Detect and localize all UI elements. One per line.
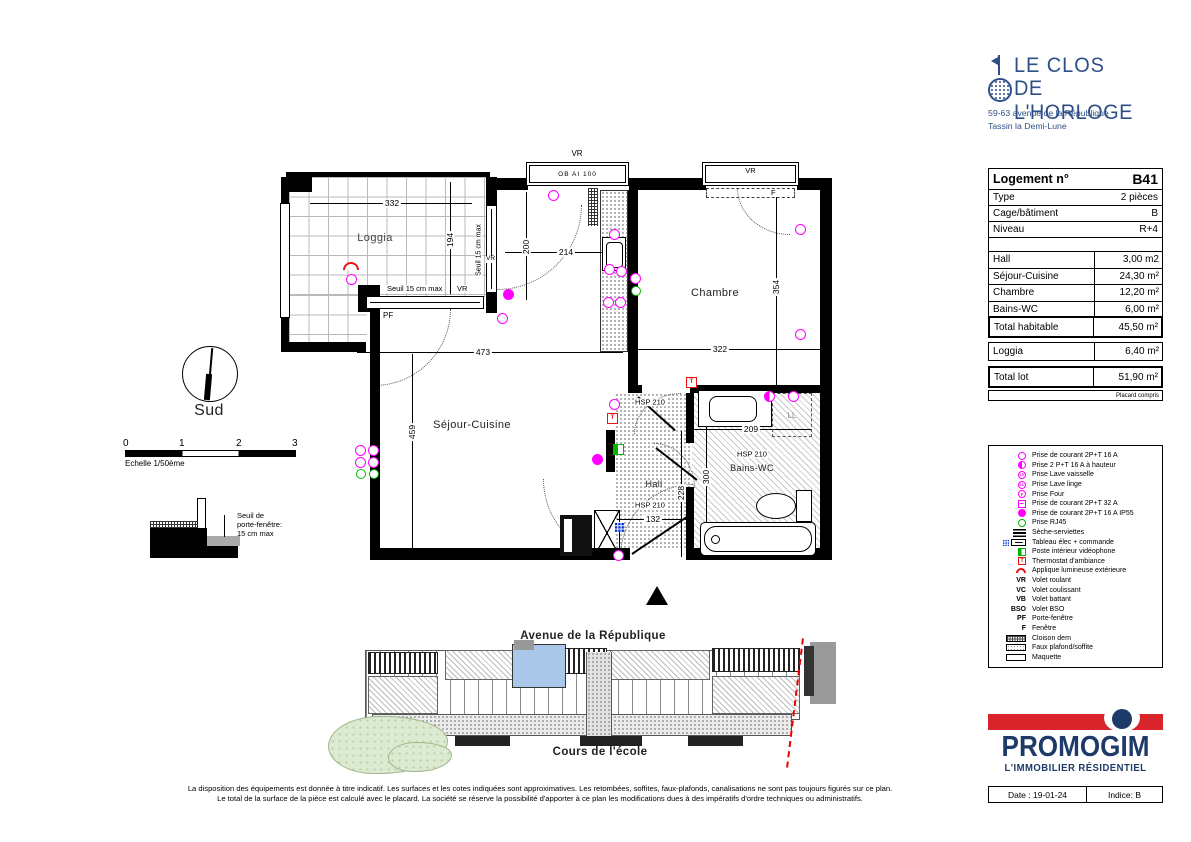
videophone-icon bbox=[1018, 548, 1026, 556]
legend-label: Sèche-serviettes bbox=[1032, 529, 1084, 536]
info-row-niveau: Niveau R+4 bbox=[989, 221, 1162, 237]
abbr-pf: PF bbox=[992, 615, 1032, 622]
hsp-label: HSP 210 bbox=[634, 398, 666, 406]
room-label-sejour: Séjour-Cuisine bbox=[433, 419, 511, 431]
legend-item: VRVolet roulant bbox=[992, 576, 1159, 586]
legend-item: VBVolet battant bbox=[992, 595, 1159, 605]
socket-icon bbox=[630, 273, 641, 284]
thermostat-icon: T bbox=[1018, 557, 1026, 565]
floor-plan-sheet: LE CLOS DE L'HORLOGE 59-63 avenue de la … bbox=[0, 0, 1191, 842]
legend-item: LLPrise Lave linge bbox=[992, 480, 1159, 490]
legend-label: Thermostat d'ambiance bbox=[1032, 558, 1105, 565]
legend-label: Prise 2 P+T 16 A à hauteur bbox=[1032, 462, 1116, 469]
footer-line2: Le total de la surface de la pièce est c… bbox=[105, 794, 975, 804]
legend-item: Maquette bbox=[992, 652, 1159, 662]
window-frame bbox=[491, 209, 492, 289]
compass-label: Sud bbox=[194, 402, 224, 420]
loggia-value: 6,40 m² bbox=[1094, 343, 1162, 360]
wall bbox=[486, 177, 497, 205]
legend-item: VCVolet coulissant bbox=[992, 585, 1159, 595]
socket-icon bbox=[346, 274, 357, 285]
socket-icon bbox=[615, 297, 626, 308]
pf-label: PF bbox=[382, 312, 394, 320]
dimension-label: 332 bbox=[383, 199, 401, 208]
abbr-vr: VR bbox=[992, 577, 1032, 584]
wall bbox=[281, 177, 289, 203]
area-row-bains: Bains-WC 6,00 m² bbox=[989, 301, 1162, 318]
legend-label: Volet battant bbox=[1032, 596, 1071, 603]
vr-label: VR bbox=[456, 285, 468, 293]
legend-label: Prise de courant 2P+T 32 A bbox=[1032, 500, 1118, 507]
socket-icon bbox=[368, 445, 379, 456]
street-label-bottom: Cours de l'école bbox=[553, 746, 648, 758]
seuil-label: Seuil 15 cm max bbox=[386, 285, 443, 293]
threshold-step-gray bbox=[207, 536, 240, 546]
total-hab-value: 45,50 m² bbox=[1093, 318, 1161, 336]
washbasin-counter bbox=[698, 390, 772, 427]
adjacent-plot-dark bbox=[804, 646, 814, 696]
wall bbox=[686, 393, 694, 443]
legend-item: Prise 2 P+T 16 A à hauteur bbox=[992, 461, 1159, 471]
socket-oven-icon: F bbox=[1018, 490, 1026, 498]
vr-label: VR bbox=[485, 256, 496, 263]
legend-item: Prise RJ45 bbox=[992, 518, 1159, 528]
info-label: Niveau bbox=[993, 224, 1024, 235]
legend-label: Faux plafond/soffite bbox=[1032, 644, 1093, 651]
vegetation bbox=[388, 742, 452, 772]
socket-dishwasher-icon: LV bbox=[1018, 471, 1026, 479]
legend-item: Faux plafond/soffite bbox=[992, 643, 1159, 653]
bathtub bbox=[700, 522, 816, 556]
socket-icon bbox=[788, 391, 799, 402]
legend-item: Prise de courant 2P+T 16 A IP55 bbox=[992, 509, 1159, 519]
room-area: 24,30 m² bbox=[1094, 269, 1162, 285]
kitchen-unit-slot bbox=[564, 519, 572, 552]
wall bbox=[486, 293, 497, 313]
dimension-label: 300 bbox=[702, 468, 711, 486]
scale-bar: 0 1 2 3 Echelle 1/50ème bbox=[125, 438, 300, 468]
socket-32a-icon bbox=[1018, 500, 1026, 508]
indice-cell: Indice: B bbox=[1087, 787, 1162, 802]
scale-tick-1: 1 bbox=[179, 438, 185, 449]
panel-command-icon bbox=[1011, 539, 1026, 546]
legend-label: Porte-fenêtre bbox=[1032, 615, 1073, 622]
dimension-label: 200 bbox=[522, 238, 531, 256]
brand-logo: LE CLOS DE L'HORLOGE 59-63 avenue de la … bbox=[988, 52, 1168, 132]
wall bbox=[370, 300, 380, 560]
bathtub-drain bbox=[711, 535, 720, 544]
loggia-label: Loggia bbox=[989, 343, 1094, 360]
legend-label: Poste intérieur vidéophone bbox=[1032, 548, 1115, 555]
street-label-top: Avenue de la République bbox=[520, 630, 666, 642]
threshold-text-1: Seuil de bbox=[236, 512, 265, 520]
thermostat-icon: T bbox=[686, 377, 697, 388]
socket-icon bbox=[609, 229, 620, 240]
abbr-f: F bbox=[992, 625, 1032, 632]
room-area: 12,20 m² bbox=[1094, 285, 1162, 301]
legend-item: Prise de courant 2P+T 16 A bbox=[992, 451, 1159, 461]
door-swing-arc bbox=[374, 309, 451, 386]
abbr-bso: BSO bbox=[992, 606, 1032, 613]
model-icon bbox=[1006, 654, 1026, 661]
promogim-logo: PROMOGIM L'IMMOBILIER RÉSIDENTIEL bbox=[988, 700, 1163, 780]
rj45-icon bbox=[356, 469, 366, 479]
wall bbox=[281, 342, 366, 352]
dimension-label: 214 bbox=[557, 248, 575, 257]
seuil-label-vertical: Seuil 15 cm max bbox=[476, 223, 483, 277]
dimension-label: 228 bbox=[677, 484, 686, 502]
room-area: 6,00 m² bbox=[1094, 302, 1162, 318]
wall bbox=[286, 172, 490, 177]
f-label: F bbox=[770, 189, 777, 197]
brand-name-line1: LE CLOS bbox=[1014, 54, 1105, 78]
slab-hatch bbox=[150, 521, 198, 528]
vr-label: VR bbox=[570, 150, 583, 158]
socket-16a-icon bbox=[1018, 452, 1026, 460]
room-label-hall: Hall bbox=[645, 479, 662, 489]
unit-title-row: Logement n° B41 bbox=[989, 169, 1162, 189]
footer-disclaimer: La disposition des équipements est donné… bbox=[105, 784, 975, 804]
room-name: Chambre bbox=[989, 285, 1094, 301]
legend-item: FFenêtre bbox=[992, 624, 1159, 634]
window-f-swing bbox=[706, 188, 795, 198]
room-name: Séjour-Cuisine bbox=[989, 269, 1094, 285]
promogim-tagline: L'IMMOBILIER RÉSIDENTIEL bbox=[992, 763, 1158, 774]
legend-label: Fenêtre bbox=[1032, 625, 1056, 632]
legend-item: FPrise Four bbox=[992, 489, 1159, 499]
socket-height-icon bbox=[1018, 461, 1026, 469]
wall bbox=[286, 172, 312, 192]
total-lot-label: Total lot bbox=[990, 368, 1093, 386]
dimension-label: 473 bbox=[474, 348, 492, 357]
legend: Prise de courant 2P+T 16 A Prise 2 P+T 1… bbox=[988, 445, 1163, 668]
socket-icon bbox=[497, 313, 508, 324]
videophone-icon bbox=[613, 444, 624, 455]
rj45-icon bbox=[1018, 519, 1026, 527]
threshold-text-3: 15 cm max bbox=[236, 530, 275, 538]
sejour-west-window bbox=[486, 205, 497, 293]
socket-icon bbox=[355, 457, 366, 468]
electrical-panel-icon bbox=[614, 522, 624, 532]
legend-label: Prise de courant 2P+T 16 A IP55 bbox=[1032, 510, 1134, 517]
electrical-panel-icon bbox=[1002, 539, 1009, 546]
wall bbox=[378, 548, 630, 560]
threshold-arrow bbox=[224, 515, 225, 537]
hsp-label: HSP 210 bbox=[634, 501, 666, 509]
partition-sample bbox=[588, 188, 598, 226]
window-vr-kitchen: OB AI 100 bbox=[526, 162, 629, 186]
legend-label: Prise Lave linge bbox=[1032, 481, 1082, 488]
dimension-label: 322 bbox=[711, 345, 729, 354]
promogim-name: PROMOGIM bbox=[997, 731, 1155, 764]
building-roof-block bbox=[712, 648, 800, 672]
entrance-marker-icon bbox=[646, 586, 668, 605]
building-block bbox=[712, 676, 800, 714]
loggia-pf-window bbox=[366, 296, 484, 309]
legend-item: Cloison dem bbox=[992, 633, 1159, 643]
legend-label: Volet coulissant bbox=[1032, 587, 1081, 594]
threshold-text-2: porte-fenêtre: bbox=[236, 521, 283, 529]
partition-icon bbox=[1006, 635, 1026, 642]
info-row-type: Type 2 pièces bbox=[989, 189, 1162, 205]
dimension-label: 209 bbox=[742, 425, 760, 434]
dimension-line bbox=[412, 354, 413, 557]
socket-washer-icon: LL bbox=[1018, 481, 1026, 489]
legend-item: Poste intérieur vidéophone bbox=[992, 547, 1159, 557]
kitchen-unit bbox=[560, 515, 592, 556]
legend-label: Prise Lave vaisselle bbox=[1032, 471, 1094, 478]
info-value: B bbox=[1151, 208, 1158, 219]
frame-section bbox=[197, 498, 206, 532]
window-vr-chambre: VR bbox=[702, 162, 799, 186]
wall bbox=[628, 385, 642, 393]
building-block bbox=[368, 676, 438, 714]
brand-address-line1: 59-63 avenue de la République bbox=[988, 108, 1109, 118]
wall bbox=[629, 178, 706, 190]
building-stub bbox=[455, 736, 510, 746]
room-label-chambre: Chambre bbox=[691, 287, 739, 299]
info-label: Type bbox=[993, 192, 1015, 203]
info-label: Cage/bâtiment bbox=[993, 208, 1058, 219]
socket-icon bbox=[548, 190, 559, 201]
legend-item: Applique lumineuse extérieure bbox=[992, 566, 1159, 576]
clock-face-icon bbox=[988, 78, 1012, 102]
building-stub bbox=[580, 736, 642, 746]
spacer-row bbox=[989, 237, 1162, 251]
room-area: 3,00 m2 bbox=[1094, 252, 1162, 268]
total-lot-row: Total lot 51,90 m² bbox=[988, 366, 1163, 388]
room-name: Hall bbox=[989, 252, 1094, 268]
loggia-side-window bbox=[280, 203, 290, 318]
central-passage bbox=[586, 652, 612, 736]
room-name: Bains-WC bbox=[989, 302, 1094, 318]
socket-icon bbox=[355, 445, 366, 456]
socket-icon bbox=[616, 266, 627, 277]
socket-icon bbox=[795, 224, 806, 235]
wall bbox=[686, 487, 694, 560]
date-indice-table: Date : 19-01-24 Indice: B bbox=[988, 786, 1163, 803]
area-row-sejour: Séjour-Cuisine 24,30 m² bbox=[989, 268, 1162, 285]
socket-icon bbox=[604, 264, 615, 275]
socket-height-icon bbox=[764, 391, 775, 402]
legend-label: Tableau élec + commande bbox=[1032, 539, 1114, 546]
legend-item: PFPorte-fenêtre bbox=[992, 614, 1159, 624]
scale-segments bbox=[125, 450, 296, 457]
hsp-label: HSP 210 bbox=[736, 450, 768, 458]
legend-label: Applique lumineuse extérieure bbox=[1032, 567, 1126, 574]
area-row-hall: Hall 3,00 m2 bbox=[989, 251, 1162, 268]
legend-label: Maquette bbox=[1032, 654, 1061, 661]
unit-number: B41 bbox=[1132, 171, 1158, 187]
table-note: Placard compris bbox=[1116, 391, 1162, 400]
info-value: 2 pièces bbox=[1121, 192, 1158, 203]
total-habitable-row: Total habitable 45,50 m² bbox=[988, 316, 1163, 338]
threshold-detail: Seuil de porte-fenêtre: 15 cm max bbox=[148, 495, 308, 565]
loggia-floor-extension bbox=[289, 295, 367, 343]
abbr-vc: VC bbox=[992, 587, 1032, 594]
window-frame bbox=[370, 302, 480, 303]
dimension-label: 132 bbox=[644, 515, 662, 524]
socket-icon bbox=[613, 550, 624, 561]
socket-icon bbox=[368, 457, 379, 468]
outdoor-light-icon bbox=[1016, 568, 1026, 573]
socket-ip55-icon bbox=[503, 289, 514, 300]
legend-item: Sèche-serviettes bbox=[992, 528, 1159, 538]
socket-ip55-icon bbox=[592, 454, 603, 465]
legend-label: Prise RJ45 bbox=[1032, 519, 1066, 526]
total-hab-label: Total habitable bbox=[990, 318, 1093, 336]
legend-item: TThermostat d'ambiance bbox=[992, 557, 1159, 567]
wc-bowl bbox=[756, 493, 796, 519]
clock-needle-icon bbox=[998, 55, 1000, 75]
wc-tank bbox=[796, 490, 812, 522]
legend-item: Tableau élec + commande bbox=[992, 537, 1159, 547]
washbasin-bowl bbox=[709, 396, 757, 422]
rj45-icon bbox=[369, 469, 379, 479]
building-roof-block bbox=[368, 652, 438, 674]
abbr-vb: VB bbox=[992, 596, 1032, 603]
towel-dryer-icon bbox=[1013, 529, 1026, 537]
window-frame: OB AI 100 bbox=[529, 165, 626, 183]
building-block bbox=[610, 650, 710, 680]
scale-tick-3: 3 bbox=[292, 438, 298, 449]
dimension-label: 194 bbox=[446, 231, 455, 249]
wall bbox=[820, 178, 832, 560]
thermostat-icon: T bbox=[607, 413, 618, 424]
dimension-label: 459 bbox=[408, 423, 417, 441]
window-frame: VR bbox=[705, 165, 796, 183]
highlighted-unit bbox=[512, 644, 566, 688]
total-lot-value: 51,90 m² bbox=[1093, 368, 1161, 386]
false-ceiling-icon bbox=[1006, 644, 1026, 651]
legend-item: Prise de courant 2P+T 32 A bbox=[992, 499, 1159, 509]
legend-label: Cloison dem bbox=[1032, 635, 1071, 642]
scale-label: Echelle 1/50ème bbox=[125, 459, 185, 468]
legend-item: LVPrise Lave vaisselle bbox=[992, 470, 1159, 480]
socket-ip55-icon bbox=[1018, 509, 1026, 517]
loggia-area-row: Loggia 6,40 m² bbox=[988, 342, 1163, 361]
table-note-row: Placard compris bbox=[988, 390, 1163, 401]
legend-label: Prise de courant 2P+T 16 A bbox=[1032, 452, 1118, 459]
unit-info-table: Logement n° B41 Type 2 pièces Cage/bâtim… bbox=[988, 168, 1163, 318]
area-row-chambre: Chambre 12,20 m² bbox=[989, 284, 1162, 301]
socket-icon bbox=[795, 329, 806, 340]
promogim-dot-icon bbox=[1112, 709, 1132, 729]
legend-label: Prise Four bbox=[1032, 491, 1064, 498]
scale-tick-0: 0 bbox=[123, 438, 129, 449]
room-label-loggia: Loggia bbox=[357, 232, 392, 244]
entry-closet bbox=[594, 510, 620, 556]
legend-label: Volet roulant bbox=[1032, 577, 1071, 584]
bathtub-inner bbox=[704, 526, 812, 552]
brand-address-line2: Tassin la Demi-Lune bbox=[988, 121, 1067, 131]
unit-title-label: Logement n° bbox=[993, 172, 1069, 186]
footer-line1: La disposition des équipements est donné… bbox=[105, 784, 975, 794]
clock-needle-flag-icon bbox=[991, 57, 998, 65]
legend-label: Volet BSO bbox=[1032, 606, 1064, 613]
socket-icon bbox=[609, 399, 620, 410]
dimension-label: 354 bbox=[772, 278, 781, 296]
date-cell: Date : 19-01-24 bbox=[989, 787, 1087, 802]
info-row-cage: Cage/bâtiment B bbox=[989, 205, 1162, 221]
socket-icon bbox=[603, 297, 614, 308]
info-value: R+4 bbox=[1139, 224, 1158, 235]
scale-tick-2: 2 bbox=[236, 438, 242, 449]
rj45-icon bbox=[631, 286, 641, 296]
room-label-bains: Bains-WC bbox=[730, 463, 774, 473]
legend-item: BSOVolet BSO bbox=[992, 605, 1159, 615]
